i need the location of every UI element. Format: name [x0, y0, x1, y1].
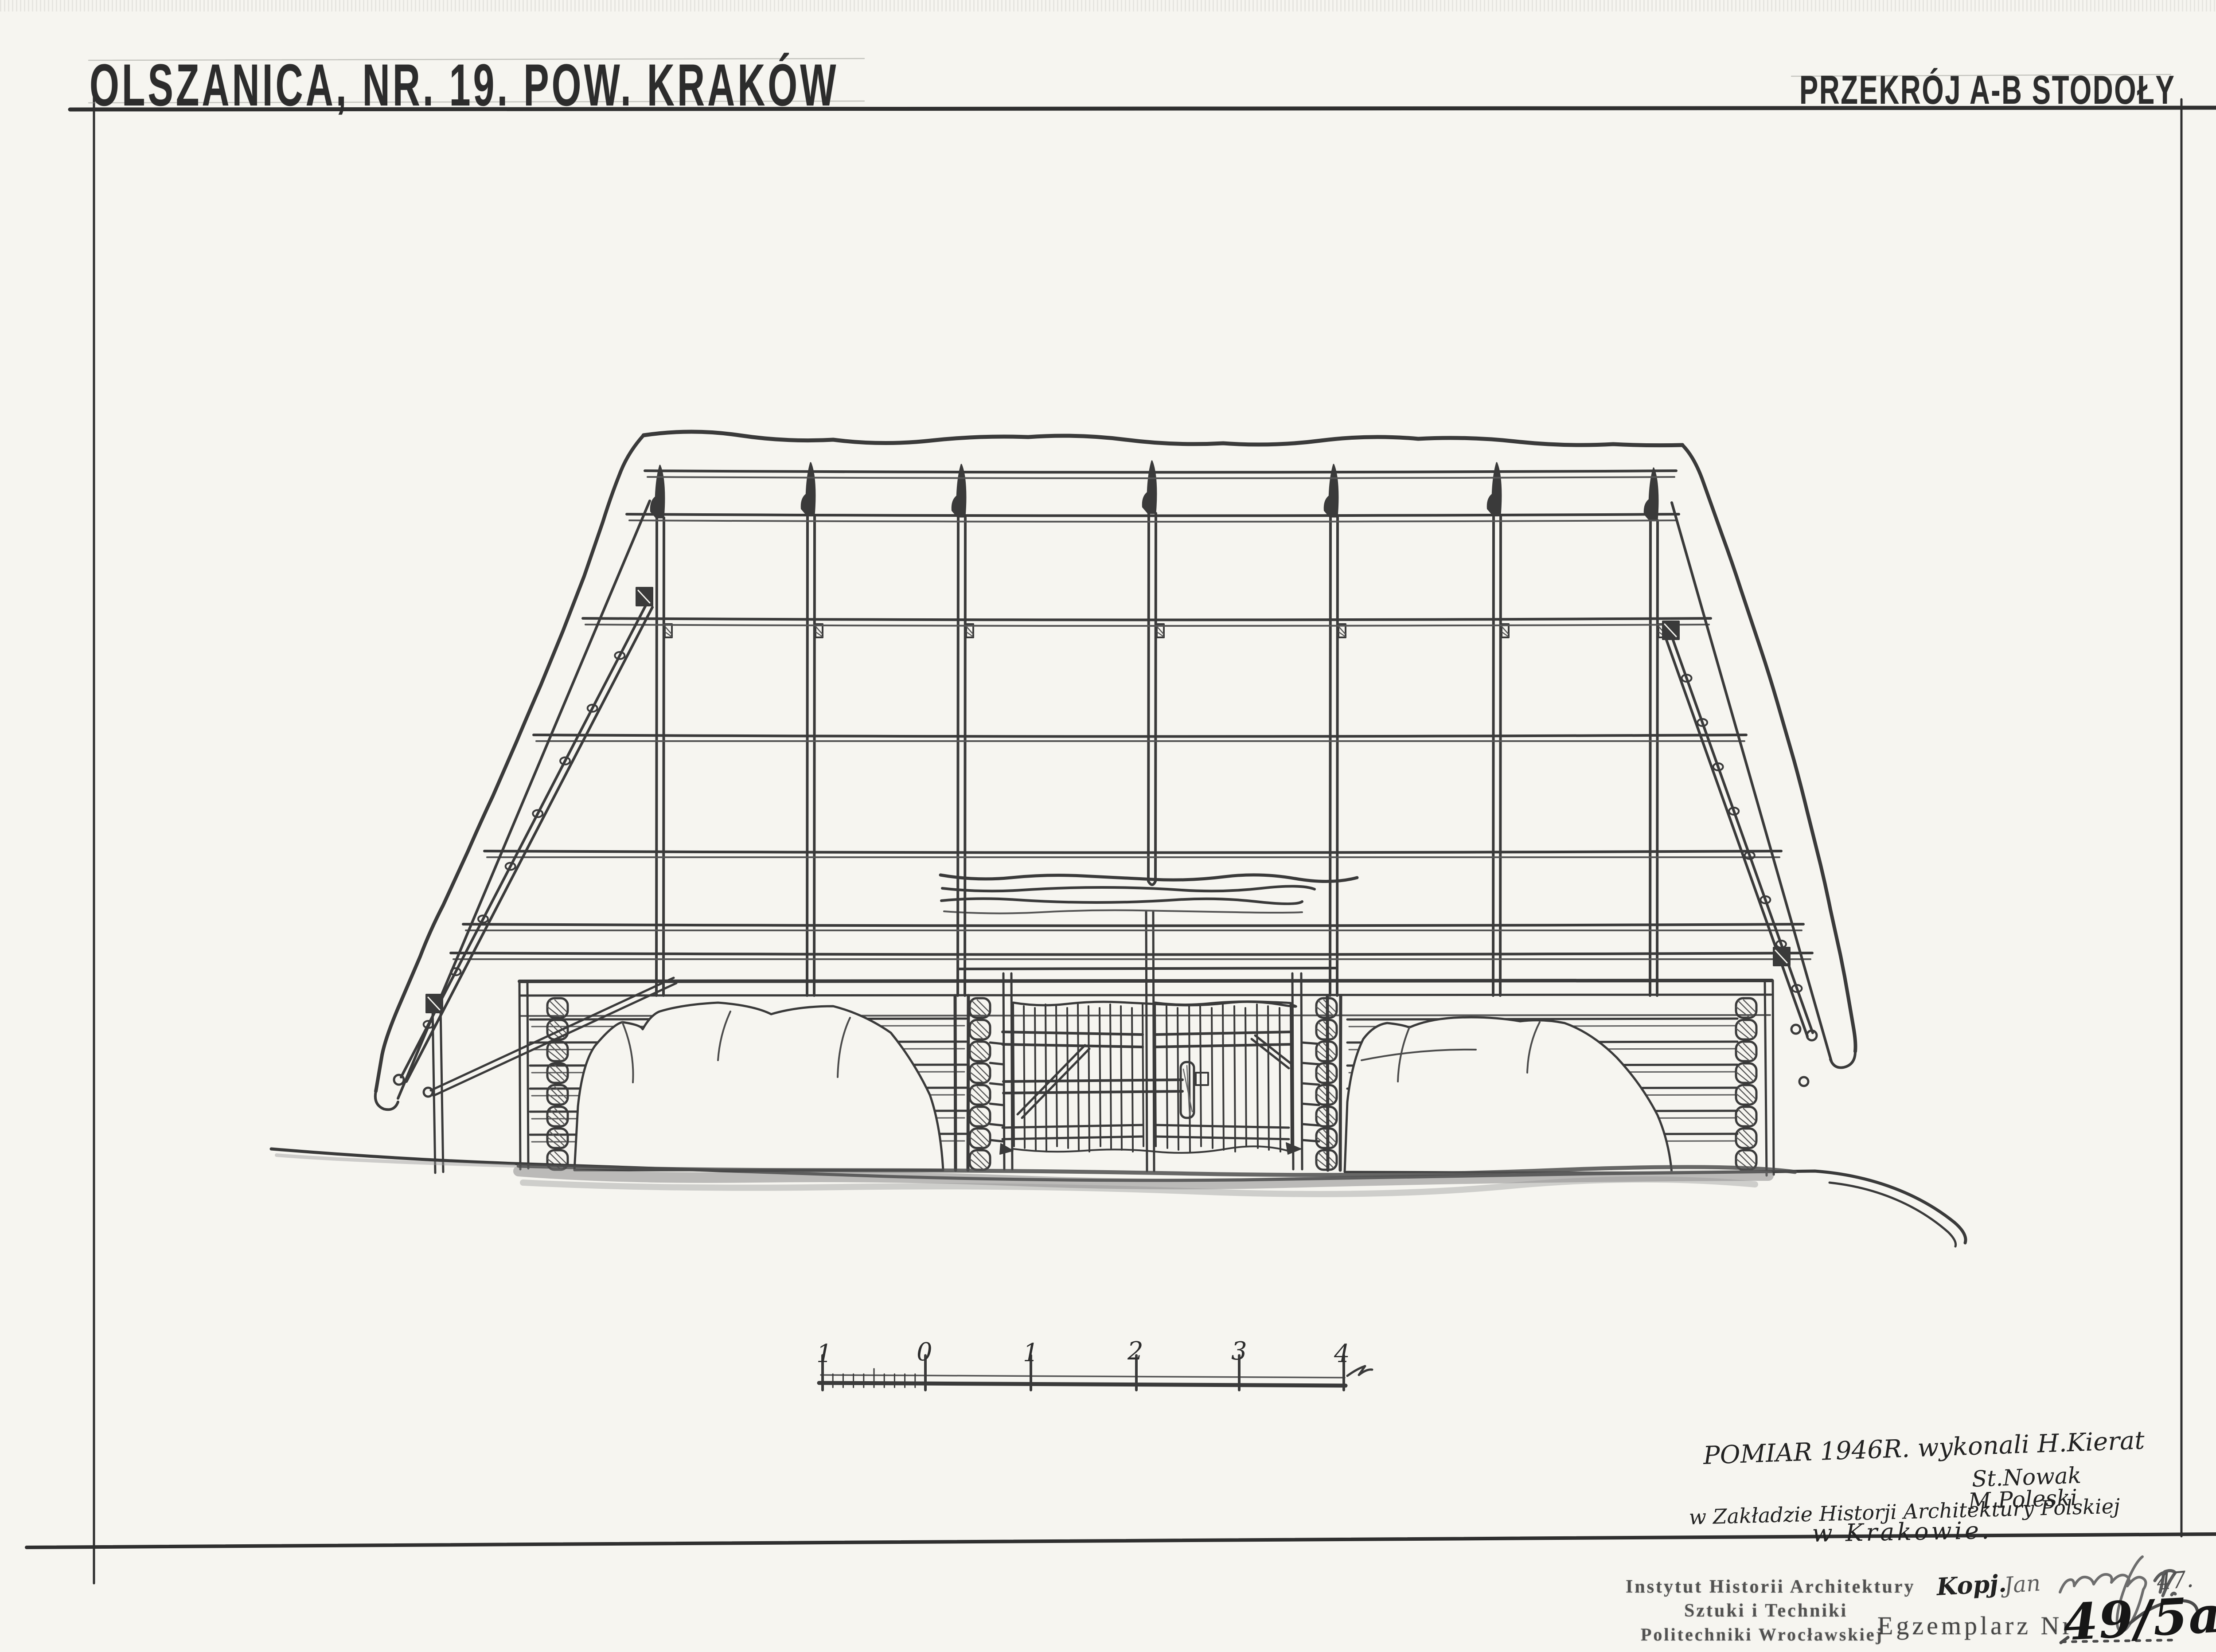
scale-tick-label: 4 [1334, 1340, 1350, 1368]
survey-note-line: w Krakowie. [1812, 1516, 1992, 1547]
scale-bar [819, 1355, 1372, 1390]
exemplar-label: Egzemplarz Nr [1877, 1611, 2074, 1640]
copy-note-prefix: Kopj. [1936, 1569, 2007, 1601]
scanned-drawing-sheet: OLSZANICA, NR. 19. POW. KRAKÓW PRZEKRÓJ … [0, 0, 2216, 1652]
stamp-line: Instytut Historii Architektury [1626, 1576, 1916, 1597]
thatch-roof-outline [375, 432, 1856, 1109]
scale-tick-label: 3 [1231, 1337, 1247, 1366]
sheet-title-left: OLSZANICA, NR. 19. POW. KRAKÓW [90, 51, 839, 120]
hay-mound-left [574, 1003, 943, 1170]
hay-mound-right [1345, 1017, 1672, 1173]
scale-tick-label: 1 [1023, 1339, 1039, 1367]
scale-tick-label: 0 [917, 1338, 932, 1367]
ground-line [271, 1149, 1966, 1246]
barn-cross-section-drawing [0, 0, 2216, 1652]
stamp-line: Sztuki i Techniki [1684, 1600, 1848, 1621]
stamp-line: Politechniki Wrocławskiej [1641, 1624, 1884, 1645]
exemplar-number: 49/5a [2062, 1586, 2216, 1652]
sheet-frame [27, 59, 2216, 1583]
sheet-title-right: PRZEKRÓJ A-B STODOŁY [1799, 67, 2175, 113]
scale-tick-label: 1 [816, 1340, 832, 1368]
copy-note-signature: Jan [2003, 1570, 2041, 1598]
scale-tick-label: 2 [1128, 1337, 1143, 1366]
gate [959, 911, 1337, 1171]
